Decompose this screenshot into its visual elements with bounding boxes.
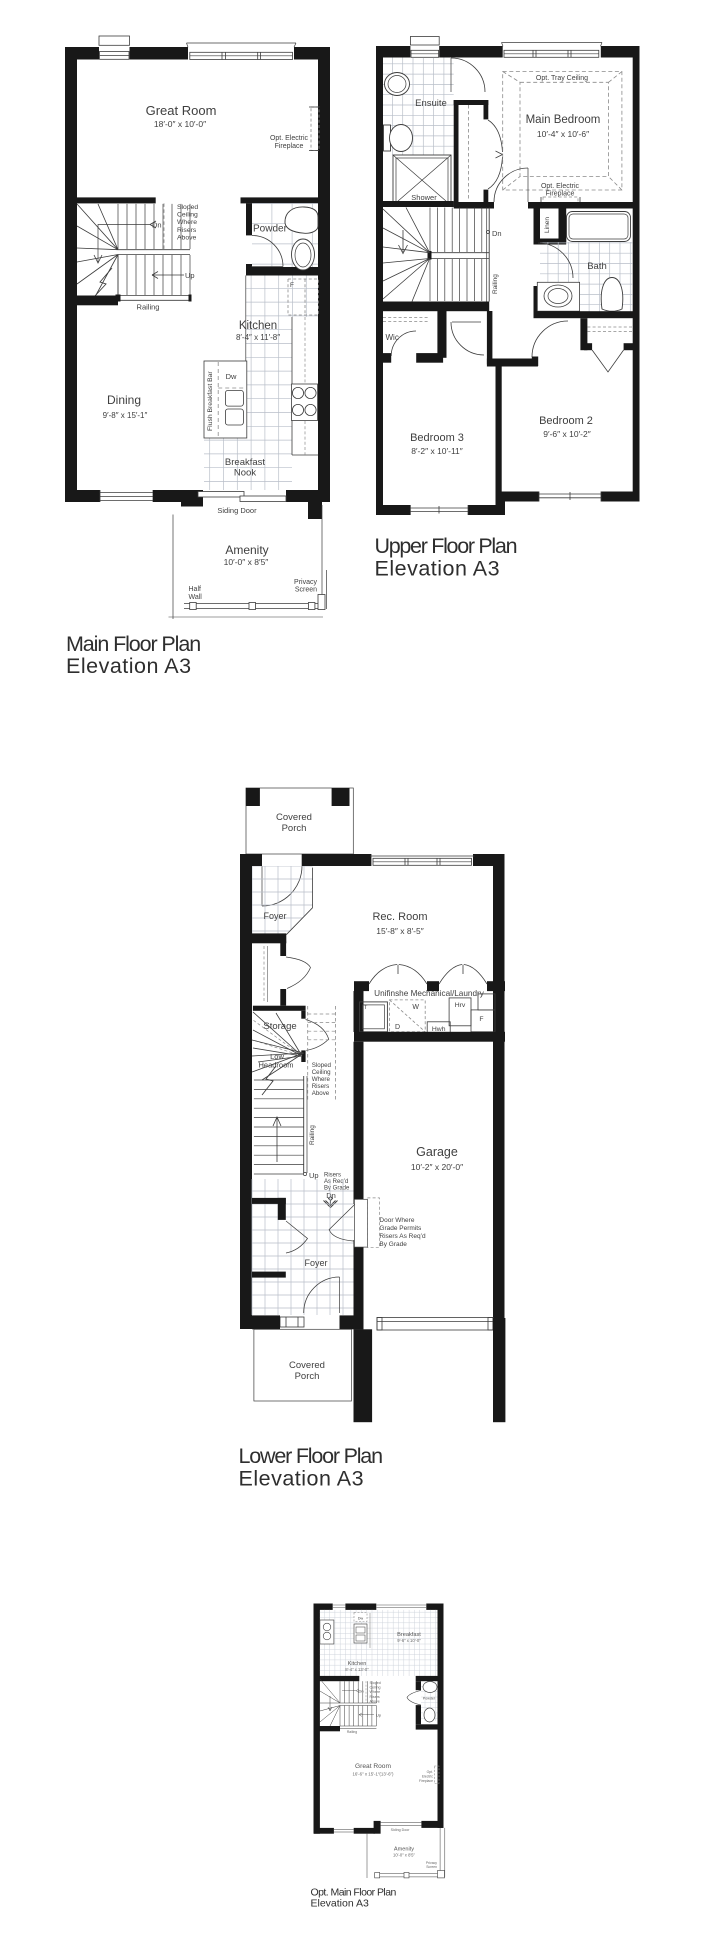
svg-text:Bedroom 2: Bedroom 2	[539, 415, 593, 427]
svg-text:By Grade: By Grade	[379, 1241, 407, 1248]
svg-text:Garage: Garage	[416, 1145, 458, 1159]
svg-text:Headroom: Headroom	[258, 1061, 293, 1070]
svg-text:Foyer: Foyer	[263, 911, 286, 921]
svg-text:Covered: Covered	[289, 1360, 325, 1371]
svg-text:Fireplace: Fireplace	[419, 1779, 433, 1783]
svg-text:9′-6″ x 10′-0″: 9′-6″ x 10′-0″	[397, 1638, 421, 1643]
svg-text:Covered: Covered	[276, 812, 312, 823]
svg-text:Sloped: Sloped	[370, 1681, 381, 1685]
svg-text:Siding Door: Siding Door	[217, 506, 257, 515]
svg-text:Siding Door: Siding Door	[391, 1828, 411, 1832]
svg-text:15′-8″ x 8′-5″: 15′-8″ x 8′-5″	[376, 926, 423, 936]
svg-text:Fireplace: Fireplace	[546, 191, 575, 198]
svg-text:Kitchen: Kitchen	[239, 320, 277, 332]
svg-text:10′-2″ x 20′-0″: 10′-2″ x 20′-0″	[411, 1162, 463, 1172]
svg-text:Dw: Dw	[226, 372, 237, 381]
svg-text:Rec. Room: Rec. Room	[372, 911, 427, 923]
svg-text:Linen: Linen	[544, 217, 551, 233]
svg-text:Above: Above	[370, 1699, 380, 1703]
svg-text:Half: Half	[189, 586, 202, 593]
svg-text:Upper Floor Plan: Upper Floor Plan	[375, 534, 517, 558]
svg-text:Screen: Screen	[426, 1865, 437, 1869]
svg-text:W: W	[412, 1004, 419, 1011]
svg-text:Breakfast: Breakfast	[225, 457, 265, 468]
svg-text:Great Room: Great Room	[146, 103, 217, 118]
svg-text:Nook: Nook	[234, 468, 256, 479]
svg-text:Great Room: Great Room	[355, 1763, 391, 1770]
svg-text:Above: Above	[177, 234, 196, 241]
svg-text:Risers: Risers	[370, 1695, 380, 1699]
svg-text:Ceiling: Ceiling	[370, 1686, 381, 1690]
svg-text:Privacy: Privacy	[294, 579, 317, 586]
svg-text:Opt. Electric: Opt. Electric	[541, 183, 580, 190]
svg-text:Fireplace: Fireplace	[275, 143, 304, 150]
svg-text:Door Where: Door Where	[379, 1217, 414, 1224]
svg-text:Where: Where	[370, 1690, 381, 1694]
svg-text:Railing: Railing	[347, 1730, 357, 1734]
svg-text:Up: Up	[185, 271, 195, 280]
svg-text:Railing: Railing	[137, 303, 160, 312]
svg-text:Screen: Screen	[295, 587, 317, 594]
svg-text:Opt. Tray Ceiling: Opt. Tray Ceiling	[536, 75, 588, 82]
svg-text:Opt. Electric: Opt. Electric	[270, 135, 309, 142]
svg-text:Bedroom 3: Bedroom 3	[410, 432, 464, 444]
svg-text:Lower Floor Plan: Lower Floor Plan	[239, 1444, 383, 1468]
svg-text:Railing: Railing	[309, 1125, 316, 1145]
svg-text:Risers: Risers	[312, 1083, 330, 1090]
svg-text:8′-4″ x 13′-0″: 8′-4″ x 13′-0″	[345, 1667, 369, 1672]
svg-text:Up: Up	[309, 1171, 319, 1180]
svg-text:Bath: Bath	[587, 261, 607, 272]
svg-text:Dn: Dn	[152, 221, 162, 230]
svg-text:9′-8″ x 15′-1″: 9′-8″ x 15′-1″	[103, 411, 148, 420]
svg-text:10′-0″ x 8′5″: 10′-0″ x 8′5″	[224, 557, 269, 567]
svg-text:Dn: Dn	[326, 1191, 336, 1200]
svg-text:Flush Breakfast Bar: Flush Breakfast Bar	[207, 371, 214, 431]
svg-text:Railing: Railing	[492, 274, 499, 294]
svg-text:Where: Where	[312, 1076, 331, 1083]
svg-text:Dw: Dw	[358, 1617, 364, 1621]
svg-text:Risers As Req’d: Risers As Req’d	[379, 1233, 426, 1240]
svg-text:Foyer: Foyer	[304, 1258, 327, 1268]
svg-text:Sloped: Sloped	[177, 204, 198, 211]
svg-text:10′-0″ x 8′5″: 10′-0″ x 8′5″	[393, 1853, 416, 1858]
svg-text:D: D	[395, 1024, 400, 1031]
svg-text:Risers: Risers	[324, 1173, 341, 1179]
svg-text:Dn: Dn	[359, 1688, 364, 1693]
svg-text:Sloped: Sloped	[312, 1062, 332, 1069]
svg-text:Ceiling: Ceiling	[312, 1069, 331, 1076]
svg-text:Above: Above	[312, 1090, 330, 1097]
svg-text:Up: Up	[376, 1713, 382, 1718]
svg-text:Main Bedroom: Main Bedroom	[526, 114, 601, 126]
svg-text:Ceiling: Ceiling	[177, 212, 198, 219]
svg-text:As Req’d: As Req’d	[324, 1179, 348, 1185]
svg-text:Unifinshe Mechanical/Laundry: Unifinshe Mechanical/Laundry	[374, 989, 485, 998]
svg-text:Porch: Porch	[295, 1371, 320, 1382]
svg-text:Elevation A3: Elevation A3	[311, 1898, 370, 1910]
svg-text:8′-4″ x 11′-8″: 8′-4″ x 11′-8″	[236, 333, 280, 342]
svg-text:Porch: Porch	[282, 823, 307, 834]
svg-text:Amenity: Amenity	[225, 543, 268, 557]
svg-text:Elevation A3: Elevation A3	[239, 1467, 365, 1491]
svg-text:Dining: Dining	[107, 393, 141, 407]
svg-text:Where: Where	[177, 219, 197, 226]
svg-text:Elevation A3: Elevation A3	[66, 654, 192, 678]
svg-text:Risers: Risers	[177, 227, 197, 234]
svg-text:18′-0″ x 10′-0″: 18′-0″ x 10′-0″	[154, 119, 206, 129]
svg-text:F: F	[479, 1016, 483, 1023]
svg-text:16′-6″ x 15′-1″(13′-6″): 16′-6″ x 15′-1″(13′-6″)	[352, 1772, 394, 1777]
svg-text:Main Floor Plan: Main Floor Plan	[66, 632, 200, 656]
svg-text:Powder: Powder	[253, 224, 288, 235]
svg-text:Storage: Storage	[263, 1021, 296, 1032]
svg-text:9′-6″ x 10′-2″: 9′-6″ x 10′-2″	[543, 429, 590, 439]
svg-text:F: F	[290, 282, 294, 289]
svg-text:Hrv: Hrv	[455, 1002, 466, 1009]
svg-text:Electric: Electric	[422, 1774, 433, 1778]
svg-text:8′-2″ x 10′-11″: 8′-2″ x 10′-11″	[411, 446, 463, 456]
svg-text:Opt.: Opt.	[427, 1770, 433, 1774]
svg-text:Wall: Wall	[189, 594, 203, 601]
svg-text:Shower: Shower	[411, 193, 437, 202]
svg-text:Powder: Powder	[423, 1697, 436, 1701]
svg-text:Ensuite: Ensuite	[415, 98, 447, 109]
svg-text:Elevation A3: Elevation A3	[375, 557, 501, 581]
svg-text:10′-4″ x 10′-6″: 10′-4″ x 10′-6″	[537, 129, 589, 139]
svg-text:Grade Permits: Grade Permits	[379, 1225, 422, 1232]
svg-text:Dn: Dn	[492, 229, 502, 238]
